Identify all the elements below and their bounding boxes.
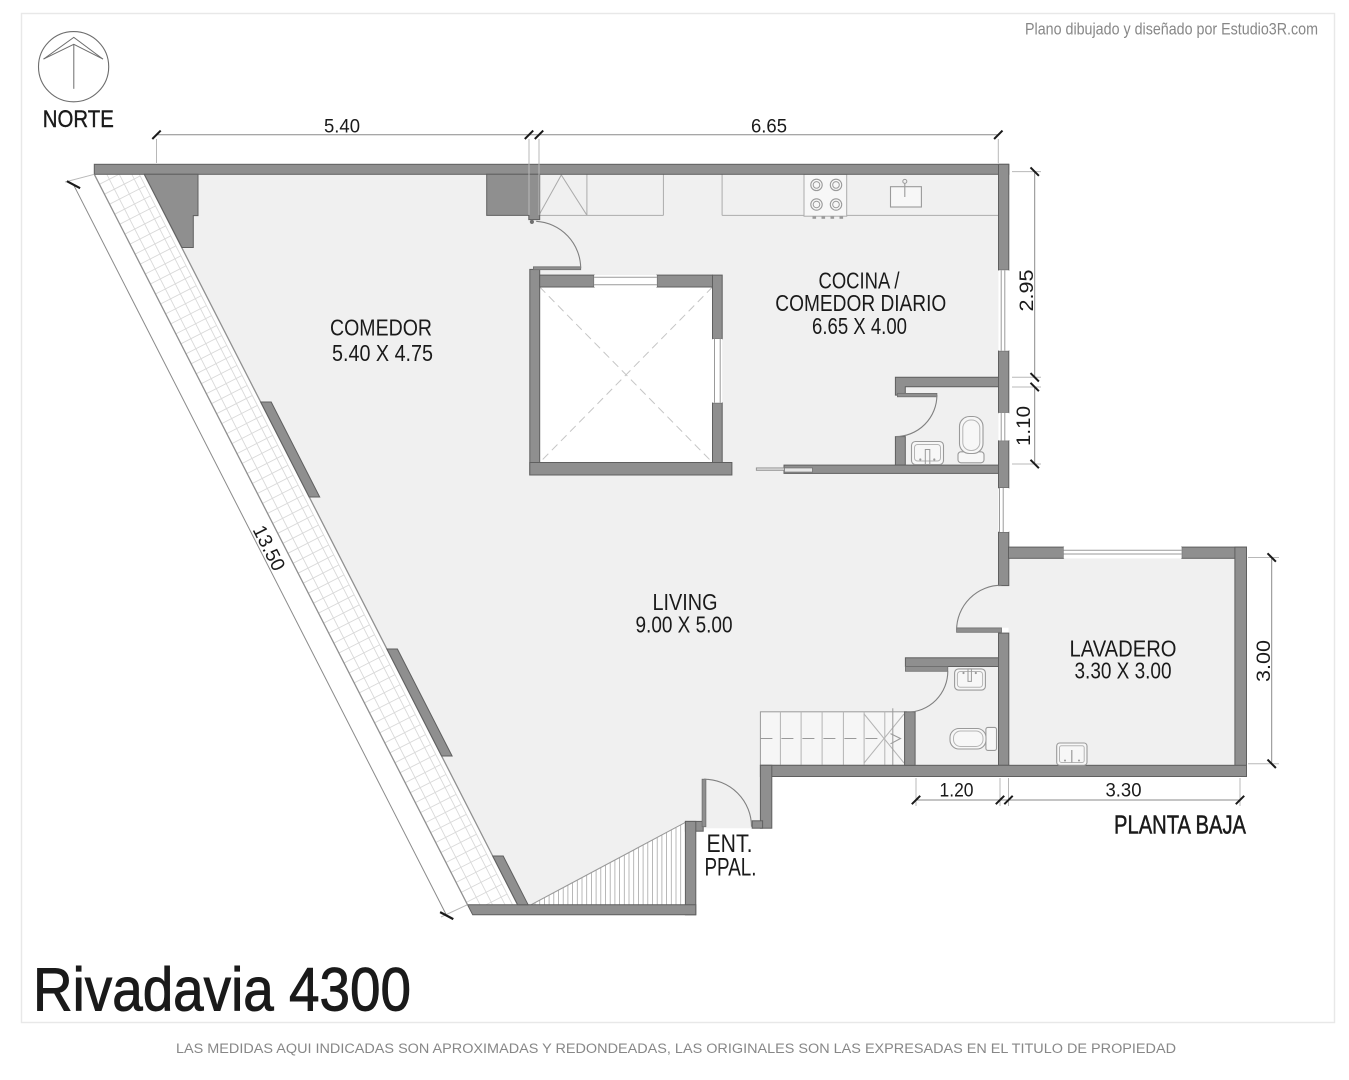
svg-text:PPAL.: PPAL.: [705, 854, 757, 882]
svg-text:Plano dibujado y diseñado por: Plano dibujado y diseñado por Estudio3R.…: [1025, 20, 1318, 39]
svg-text:3.30 X 3.00: 3.30 X 3.00: [1075, 657, 1172, 683]
svg-text:PLANTA BAJA: PLANTA BAJA: [1114, 810, 1247, 840]
svg-text:5.40 X 4.75: 5.40 X 4.75: [332, 340, 433, 366]
svg-text:6.65: 6.65: [751, 116, 787, 137]
svg-text:3.00: 3.00: [1253, 640, 1275, 682]
svg-text:6.65 X 4.00: 6.65 X 4.00: [812, 313, 907, 339]
svg-text:LAS MEDIDAS AQUI INDICADAS SON: LAS MEDIDAS AQUI INDICADAS SON APROXIMAD…: [176, 1041, 1176, 1056]
svg-text:3.30: 3.30: [1106, 781, 1142, 802]
svg-text:1.10: 1.10: [1013, 406, 1035, 446]
svg-text:9.00 X 5.00: 9.00 X 5.00: [636, 612, 733, 638]
svg-text:1.20: 1.20: [940, 781, 974, 802]
svg-text:2.95: 2.95: [1016, 269, 1038, 311]
svg-text:NORTE: NORTE: [43, 106, 114, 133]
svg-text:COMEDOR: COMEDOR: [330, 315, 432, 341]
svg-text:5.40: 5.40: [324, 116, 360, 137]
svg-text:Rivadavia 4300: Rivadavia 4300: [33, 956, 411, 1025]
